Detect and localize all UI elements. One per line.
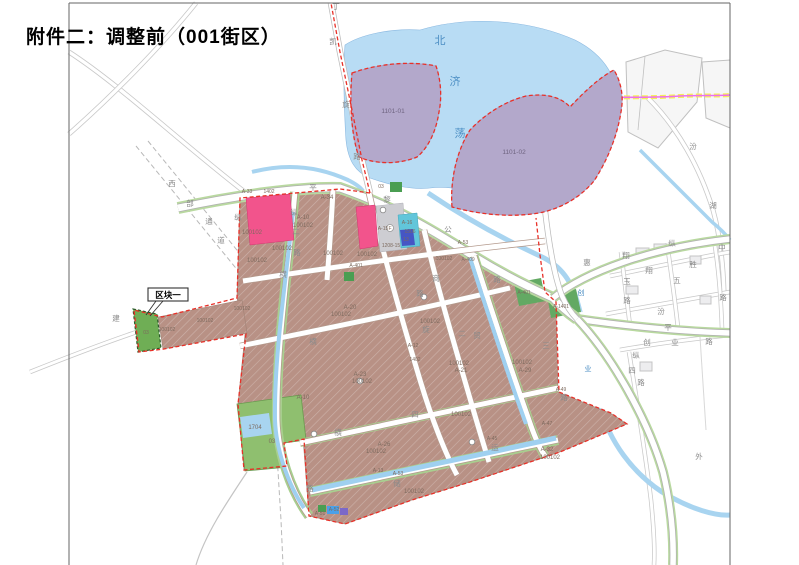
road-marker [421, 294, 427, 300]
map-label: 纵 [632, 351, 640, 360]
pink-parcel-east [356, 205, 378, 249]
zoning-map: 北济荡1101-011101-02丁凯旋路西部通道建平黎公路纵二路纵横路商贸旋二… [0, 0, 799, 565]
road-marker [357, 378, 363, 384]
road-marker [380, 207, 386, 213]
page-title: 附件二：调整前（001街区） [26, 22, 281, 49]
map-label: 外 [695, 451, 703, 461]
map-label: 建 [112, 313, 120, 323]
map-label: 03 [378, 184, 384, 190]
map-label: 道 [217, 235, 225, 245]
map-label: 通 [205, 216, 213, 226]
map-label: 惠 [583, 257, 591, 267]
map-label: 汾 [657, 307, 665, 316]
map-label: 路 [637, 377, 645, 387]
map-label: 创 [578, 288, 585, 297]
pink-parcel-west [246, 194, 294, 245]
pond-1704 [240, 413, 272, 438]
planning-map-page: 附件二：调整前（001街区） [0, 0, 799, 565]
map-label: 汾 [689, 142, 697, 151]
deep-blue-parcel [400, 229, 415, 246]
road-marker [469, 439, 475, 445]
road-marker [311, 431, 317, 437]
